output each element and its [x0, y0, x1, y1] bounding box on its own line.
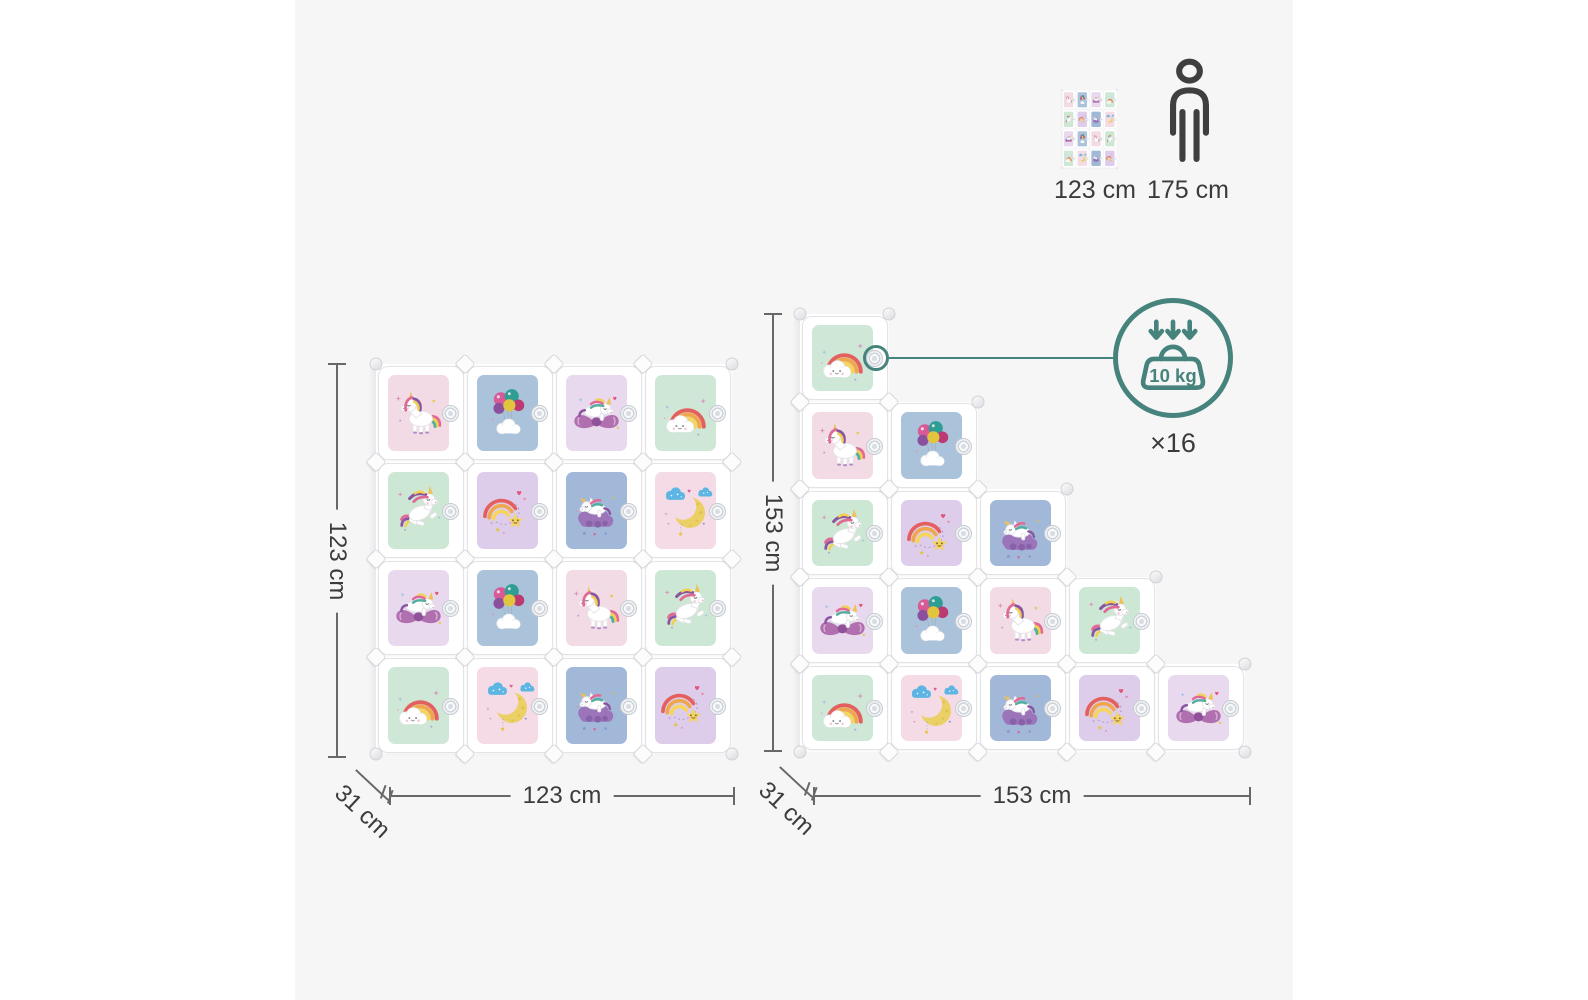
- storage-cube: [643, 559, 732, 657]
- storage-cube: [800, 489, 889, 577]
- storage-cube: [1103, 110, 1117, 130]
- cube-panel: [990, 500, 1051, 567]
- storage-cube: [643, 462, 732, 560]
- cube-door: [467, 561, 553, 656]
- door-knob-icon: [866, 525, 883, 542]
- unicorn-prancing-icon: [812, 500, 873, 567]
- cube-panel: [901, 500, 962, 567]
- storage-cube: [978, 489, 1067, 577]
- cube-door: [1062, 149, 1075, 168]
- cube-door: [1076, 90, 1089, 109]
- door-knob-icon: [1072, 118, 1075, 121]
- rainbow-shooting-star-icon: [901, 500, 962, 567]
- cube-door: [378, 658, 464, 753]
- rainbow-cloud-icon: [812, 675, 873, 742]
- storage-cube: [1062, 90, 1076, 110]
- cube-panel: [655, 375, 716, 452]
- storage-cube: [643, 657, 732, 755]
- door-knob-icon: [1086, 118, 1089, 121]
- cube-door: [556, 463, 642, 558]
- unicorn-sleeping-cloud-icon: [990, 500, 1051, 567]
- corner-knob-icon: [794, 745, 807, 758]
- door-knob-icon: [1222, 700, 1239, 717]
- storage-cube: [978, 577, 1067, 665]
- unicorn-on-bow-icon: [1168, 675, 1229, 742]
- unicorn-prancing-icon: [1079, 587, 1140, 654]
- cube-panel: [990, 675, 1051, 742]
- storage-cube: [1067, 577, 1156, 665]
- door-knob-icon: [1086, 157, 1089, 160]
- cube-door: [891, 403, 977, 488]
- cube-door: [556, 561, 642, 656]
- storage-cube: [554, 559, 643, 657]
- cube-door: [891, 491, 977, 576]
- door-knob-icon: [442, 698, 459, 715]
- door-knob-icon: [1100, 157, 1103, 160]
- cube-door: [1090, 110, 1103, 129]
- door-knob-icon: [709, 698, 726, 715]
- right-unit-width-dim: 153 cm: [814, 795, 1250, 797]
- person-icon: [1166, 56, 1213, 173]
- door-knob-icon: [1044, 700, 1061, 717]
- cube-panel: [477, 472, 538, 549]
- door-knob-icon: [442, 600, 459, 617]
- storage-cube: [1062, 129, 1076, 149]
- corner-knob-icon: [972, 395, 985, 408]
- cube-panel: [655, 667, 716, 744]
- door-knob-icon: [1113, 118, 1116, 121]
- corner-knob-icon: [1150, 570, 1163, 583]
- storage-cube: [889, 489, 978, 577]
- load-capacity-badge: 10 kg: [1113, 298, 1233, 418]
- door-knob-icon: [709, 503, 726, 520]
- cube-door: [1103, 149, 1116, 168]
- door-knob-icon: [866, 700, 883, 717]
- person-icon: [1166, 56, 1213, 168]
- unicorn-standing-icon: [388, 375, 449, 452]
- door-knob-icon: [1100, 137, 1103, 140]
- storage-cube: [1103, 129, 1117, 149]
- rainbow-shooting-star-icon: [655, 667, 716, 744]
- door-knob-icon: [1100, 98, 1103, 101]
- storage-cube: [800, 577, 889, 665]
- storage-cube: [1090, 129, 1104, 149]
- cube-door: [802, 666, 888, 751]
- left-unit-width-dim: 123 cm: [390, 795, 734, 797]
- cube-panel: [901, 675, 962, 742]
- capacity-pointer-line: [889, 357, 1113, 359]
- door-knob-icon: [955, 613, 972, 630]
- cabinet-thumbnail: [1062, 90, 1117, 168]
- cube-panel: [1079, 587, 1140, 654]
- door-knob-icon: [1113, 137, 1116, 140]
- storage-cube: [1076, 110, 1090, 130]
- cube-door: [980, 578, 1066, 663]
- storage-cube: [465, 559, 554, 657]
- cube-door: [556, 366, 642, 461]
- storage-cube: [1103, 90, 1117, 110]
- cube-door: [980, 491, 1066, 576]
- cube-panel: [566, 472, 627, 549]
- door-knob-icon: [1044, 525, 1061, 542]
- storage-cube: [1067, 664, 1156, 752]
- corner-knob-icon: [370, 748, 383, 761]
- moon-clouds-icon: [655, 472, 716, 549]
- door-knob-icon: [1113, 98, 1116, 101]
- corner-knob-icon: [726, 358, 739, 371]
- storage-cube: [800, 664, 889, 752]
- knob-highlight-ring: [863, 345, 889, 371]
- door-knob-icon: [955, 438, 972, 455]
- cube-panel: [990, 587, 1051, 654]
- corner-knob-icon: [1116, 89, 1118, 92]
- cube-panel: [655, 570, 716, 647]
- right-unit-height-label: 153 cm: [756, 481, 790, 584]
- cube-door: [645, 463, 731, 558]
- storage-cube: [1103, 149, 1117, 169]
- corner-knob-icon: [1061, 483, 1074, 496]
- cube-door: [1076, 129, 1089, 148]
- cube-panel: [812, 675, 873, 742]
- door-knob-icon: [620, 698, 637, 715]
- cube-panel: [566, 570, 627, 647]
- cube-door: [980, 666, 1066, 751]
- cube-door: [378, 366, 464, 461]
- storage-cube: [1076, 129, 1090, 149]
- cube-panel: [566, 667, 627, 744]
- cube-quantity-label: ×16: [1113, 428, 1233, 459]
- storage-cube: [554, 657, 643, 755]
- storage-cube: [889, 577, 978, 665]
- corner-knob-icon: [794, 308, 807, 321]
- door-knob-icon: [442, 503, 459, 520]
- door-knob-icon: [1072, 157, 1075, 160]
- cube-door: [1090, 90, 1103, 109]
- cube-panel: [477, 667, 538, 744]
- cube-door: [1103, 110, 1116, 129]
- cube-door: [1103, 129, 1116, 148]
- cube-door: [1090, 149, 1103, 168]
- right-unit-height-dim: 153 cm: [772, 314, 774, 751]
- cube-panel: [477, 570, 538, 647]
- storage-cube: [376, 657, 465, 755]
- door-knob-icon: [1086, 137, 1089, 140]
- cube-panel: [812, 587, 873, 654]
- cube-panel: [388, 472, 449, 549]
- unicorn-on-bow-icon: [812, 587, 873, 654]
- cube-door: [1062, 90, 1075, 109]
- storage-cube: [554, 462, 643, 560]
- balloons-cloud-icon: [477, 375, 538, 452]
- unicorn-prancing-icon: [388, 472, 449, 549]
- cube-door: [645, 658, 731, 753]
- unicorn-standing-icon: [566, 570, 627, 647]
- unicorn-on-bow-icon: [566, 375, 627, 452]
- unicorn-sleeping-cloud-icon: [990, 675, 1051, 742]
- door-knob-icon: [1113, 157, 1116, 160]
- storage-cube: [465, 657, 554, 755]
- corner-knob-icon: [1116, 167, 1118, 170]
- storage-cube: [1062, 149, 1076, 169]
- storage-cube: [1090, 149, 1104, 169]
- cube-panel: [388, 570, 449, 647]
- cube-panel: [655, 472, 716, 549]
- cube-door: [1090, 129, 1103, 148]
- cube-panel: [901, 587, 962, 654]
- door-knob-icon: [1133, 700, 1150, 717]
- storage-cube: [1076, 90, 1090, 110]
- unicorn-on-bow-icon: [388, 570, 449, 647]
- storage-cube: [889, 664, 978, 752]
- cube-panel: [901, 412, 962, 479]
- corner-knob-icon: [1061, 89, 1063, 92]
- cube-door: [645, 561, 731, 656]
- cube-panel: [1168, 675, 1229, 742]
- door-knob-icon: [955, 700, 972, 717]
- unicorn-standing-icon: [812, 412, 873, 479]
- cube-door: [802, 403, 888, 488]
- left-unit-width-label: 123 cm: [511, 779, 614, 813]
- door-knob-icon: [531, 698, 548, 715]
- door-knob-icon: [866, 438, 883, 455]
- cube-panel: [812, 412, 873, 479]
- storage-cube: [643, 364, 732, 462]
- door-knob-icon: [620, 600, 637, 617]
- corner-knob-icon: [726, 748, 739, 761]
- rainbow-shooting-star-icon: [477, 472, 538, 549]
- cube-door: [1062, 129, 1075, 148]
- cube-panel: [388, 375, 449, 452]
- corner-knob-icon: [1239, 658, 1252, 671]
- balloons-cloud-icon: [901, 587, 962, 654]
- cube-door: [467, 658, 553, 753]
- cube-door: [645, 366, 731, 461]
- unicorn-prancing-icon: [655, 570, 716, 647]
- storage-cube: [376, 364, 465, 462]
- storage-cube: [978, 664, 1067, 752]
- rainbow-cloud-icon: [655, 375, 716, 452]
- door-knob-icon: [1133, 613, 1150, 630]
- cube-door: [1069, 578, 1155, 663]
- weight-load-icon: 10 kg: [1122, 307, 1224, 409]
- storage-cube: [1156, 664, 1245, 752]
- corner-knob-icon: [1239, 745, 1252, 758]
- storage-cube: [465, 364, 554, 462]
- cube-door: [1076, 149, 1089, 168]
- door-knob-icon: [955, 525, 972, 542]
- left-unit-height-label: 123 cm: [320, 509, 354, 612]
- door-knob-icon: [531, 503, 548, 520]
- door-knob-icon: [866, 613, 883, 630]
- person-height-label: 175 cm: [1133, 176, 1243, 205]
- door-knob-icon: [1072, 137, 1075, 140]
- cube-door: [1076, 110, 1089, 129]
- cube-door: [891, 578, 977, 663]
- cube-panel: [477, 375, 538, 452]
- door-knob-icon: [1072, 98, 1075, 101]
- balloons-cloud-icon: [477, 570, 538, 647]
- cube-door: [802, 578, 888, 663]
- right-unit-width-label: 153 cm: [981, 779, 1084, 813]
- door-knob-icon: [620, 405, 637, 422]
- unicorn-sleeping-cloud-icon: [566, 667, 627, 744]
- balloons-cloud-icon: [901, 412, 962, 479]
- storage-cube: [376, 462, 465, 560]
- moon-clouds-icon: [901, 675, 962, 742]
- cube-door: [802, 491, 888, 576]
- cube-panel: [566, 375, 627, 452]
- weight-capacity-label: 10 kg: [1149, 365, 1196, 386]
- cube-panel: [388, 667, 449, 744]
- cube-door: [467, 463, 553, 558]
- cube-door: [378, 561, 464, 656]
- storage-cube: [1090, 90, 1104, 110]
- cube-door: [1069, 666, 1155, 751]
- door-knob-icon: [531, 600, 548, 617]
- left-unit-height-dim: 123 cm: [336, 364, 338, 757]
- cube-panel: [1079, 675, 1140, 742]
- door-knob-icon: [620, 503, 637, 520]
- storage-cube: [1076, 149, 1090, 169]
- cube-door: [556, 658, 642, 753]
- cube-door: [891, 666, 977, 751]
- corner-knob-icon: [370, 358, 383, 371]
- door-knob-icon: [709, 405, 726, 422]
- unicorn-sleeping-cloud-icon: [566, 472, 627, 549]
- cube-door: [467, 366, 553, 461]
- moon-clouds-icon: [477, 667, 538, 744]
- cube-door: [1062, 110, 1075, 129]
- rainbow-shooting-star-icon: [1079, 675, 1140, 742]
- storage-cube: [465, 462, 554, 560]
- cube-door: [378, 463, 464, 558]
- corner-knob-icon: [1061, 167, 1063, 170]
- storage-cube: [376, 559, 465, 657]
- storage-cube: [800, 402, 889, 490]
- door-knob-icon: [1086, 98, 1089, 101]
- storage-cube: [554, 364, 643, 462]
- unit-size-thumbnail: [1062, 90, 1118, 169]
- unicorn-standing-icon: [990, 587, 1051, 654]
- storage-cube: [1062, 110, 1076, 130]
- storage-cube: [889, 402, 978, 490]
- product-dimension-diagram: 123 cm 123 cm 31 cm: [0, 0, 1588, 1000]
- door-knob-icon: [1100, 118, 1103, 121]
- cube-door: [1158, 666, 1244, 751]
- left-storage-unit: [376, 364, 732, 754]
- rainbow-cloud-icon: [388, 667, 449, 744]
- corner-knob-icon: [883, 308, 896, 321]
- storage-cube: [1090, 110, 1104, 130]
- door-knob-icon: [442, 405, 459, 422]
- door-knob-icon: [531, 405, 548, 422]
- cube-door: [1103, 90, 1116, 109]
- door-knob-icon: [1044, 613, 1061, 630]
- cube-panel: [812, 500, 873, 567]
- door-knob-icon: [709, 600, 726, 617]
